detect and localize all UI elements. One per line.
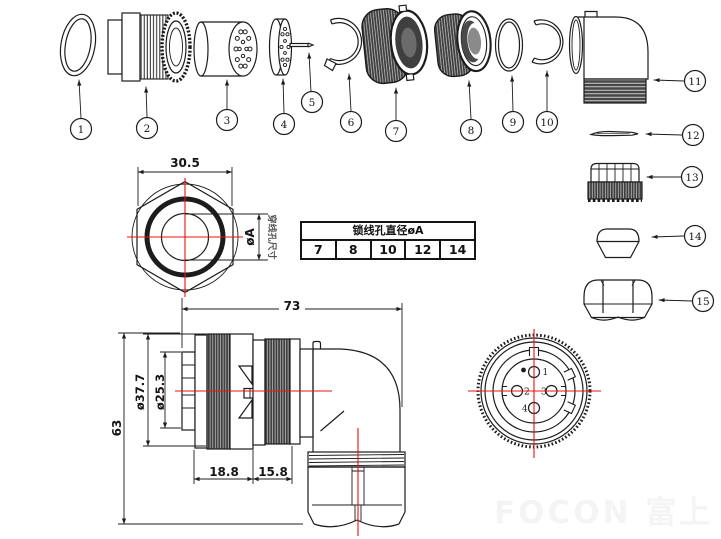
spec-value-1: 7: [302, 241, 337, 258]
height-label: 63: [110, 420, 124, 437]
spec-value-5: 14: [441, 241, 474, 258]
callout-12: 12: [646, 125, 704, 146]
hole-dia-label: øA: [243, 228, 257, 246]
callout-2-number: 2: [144, 123, 151, 135]
pin-label-2: 2: [524, 388, 530, 398]
part-coupling-nut: [360, 3, 431, 85]
part-gland-nut: [584, 280, 652, 320]
part-oring-round: [496, 19, 523, 71]
callout-11: 11: [654, 71, 706, 92]
part-oring-flat: [56, 12, 100, 79]
pin-label-1: 1: [543, 368, 549, 378]
callout-5-number: 5: [309, 97, 316, 109]
callout-8: 8: [461, 81, 482, 141]
rear-face-view: 1 2 3 4: [468, 329, 601, 458]
technical-drawing-page: 1 2 3 4 5 6 7: [0, 0, 721, 539]
callout-13: 13: [647, 167, 703, 188]
spec-value-2: 8: [337, 241, 372, 258]
total-length-label: 73: [284, 299, 301, 313]
spec-table-title: 锁线孔直径øA: [302, 223, 474, 241]
callout-2: 2: [137, 87, 158, 139]
callout-1: 1: [71, 80, 92, 140]
callout-4-number: 4: [281, 119, 288, 131]
callout-13-number: 13: [685, 172, 698, 184]
hex-width-label: 30.5: [170, 156, 200, 170]
part-retaining-ring: [532, 20, 563, 64]
part-threaded-shell: [108, 13, 190, 81]
callout-15-number: 15: [696, 296, 709, 308]
callout-14: 14: [652, 226, 706, 247]
spec-value-3: 10: [372, 241, 407, 258]
part-grommet: [597, 229, 639, 258]
callout-1-number: 1: [78, 124, 85, 136]
callout-10: 10: [537, 71, 558, 133]
technical-drawing-canvas: 1 2 3 4 5 6 7: [0, 0, 721, 539]
side-assembly-view: 73 63 ø37.7 ø25.3: [110, 298, 405, 536]
callout-5: 5: [302, 53, 323, 113]
pin-label-4: 4: [522, 405, 528, 415]
callout-11-number: 11: [688, 76, 701, 88]
callout-7: 7: [386, 88, 407, 142]
part-loose-pin: [591, 132, 638, 136]
callout-4: 4: [274, 79, 295, 135]
callout-9-number: 9: [510, 117, 517, 129]
dim-inner-dia: ø25.3: [153, 352, 181, 428]
callout-12-number: 12: [686, 130, 699, 142]
pin-label-3: 3: [541, 388, 547, 398]
callout-6-number: 6: [348, 117, 355, 129]
callout-6: 6: [341, 74, 362, 133]
part-spring-clip: [325, 18, 362, 70]
part-clamp-ferrule: [588, 164, 642, 201]
callout-3-number: 3: [224, 115, 231, 127]
part-contact-pin: [290, 43, 313, 47]
brand-watermark: FOCON 富上: [494, 487, 721, 532]
rear-len-label: 15.8: [258, 465, 288, 479]
callout-9: 9: [503, 76, 524, 133]
part-locking-ring: [433, 10, 494, 78]
callout-14-number: 14: [688, 231, 702, 243]
outer-dia-label: ø37.7: [133, 374, 147, 410]
callout-3: 3: [217, 80, 238, 131]
spec-table: 锁线孔直径øA 7 8 10 12 14: [300, 221, 476, 260]
hex-front-view: 30.5 øA 穿线孔尺寸: [127, 156, 278, 297]
hole-note-label: 穿线孔尺寸: [266, 214, 278, 259]
spec-value-4: 12: [406, 241, 441, 258]
spec-table-row: 7 8 10 12 14: [302, 241, 474, 258]
key-dot: [521, 368, 526, 373]
dim-segment-lengths: 18.8 15.8: [194, 446, 292, 484]
part-elbow-housing: [570, 12, 649, 104]
callout-10-number: 10: [540, 117, 553, 129]
part-insert-body: [194, 22, 257, 76]
callout-15: 15: [659, 291, 714, 312]
part-contact-disc: [270, 19, 314, 75]
inner-dia-label: ø25.3: [153, 374, 167, 410]
front-len-label: 18.8: [209, 465, 239, 479]
callout-7-number: 7: [393, 126, 400, 138]
callout-8-number: 8: [468, 125, 475, 137]
